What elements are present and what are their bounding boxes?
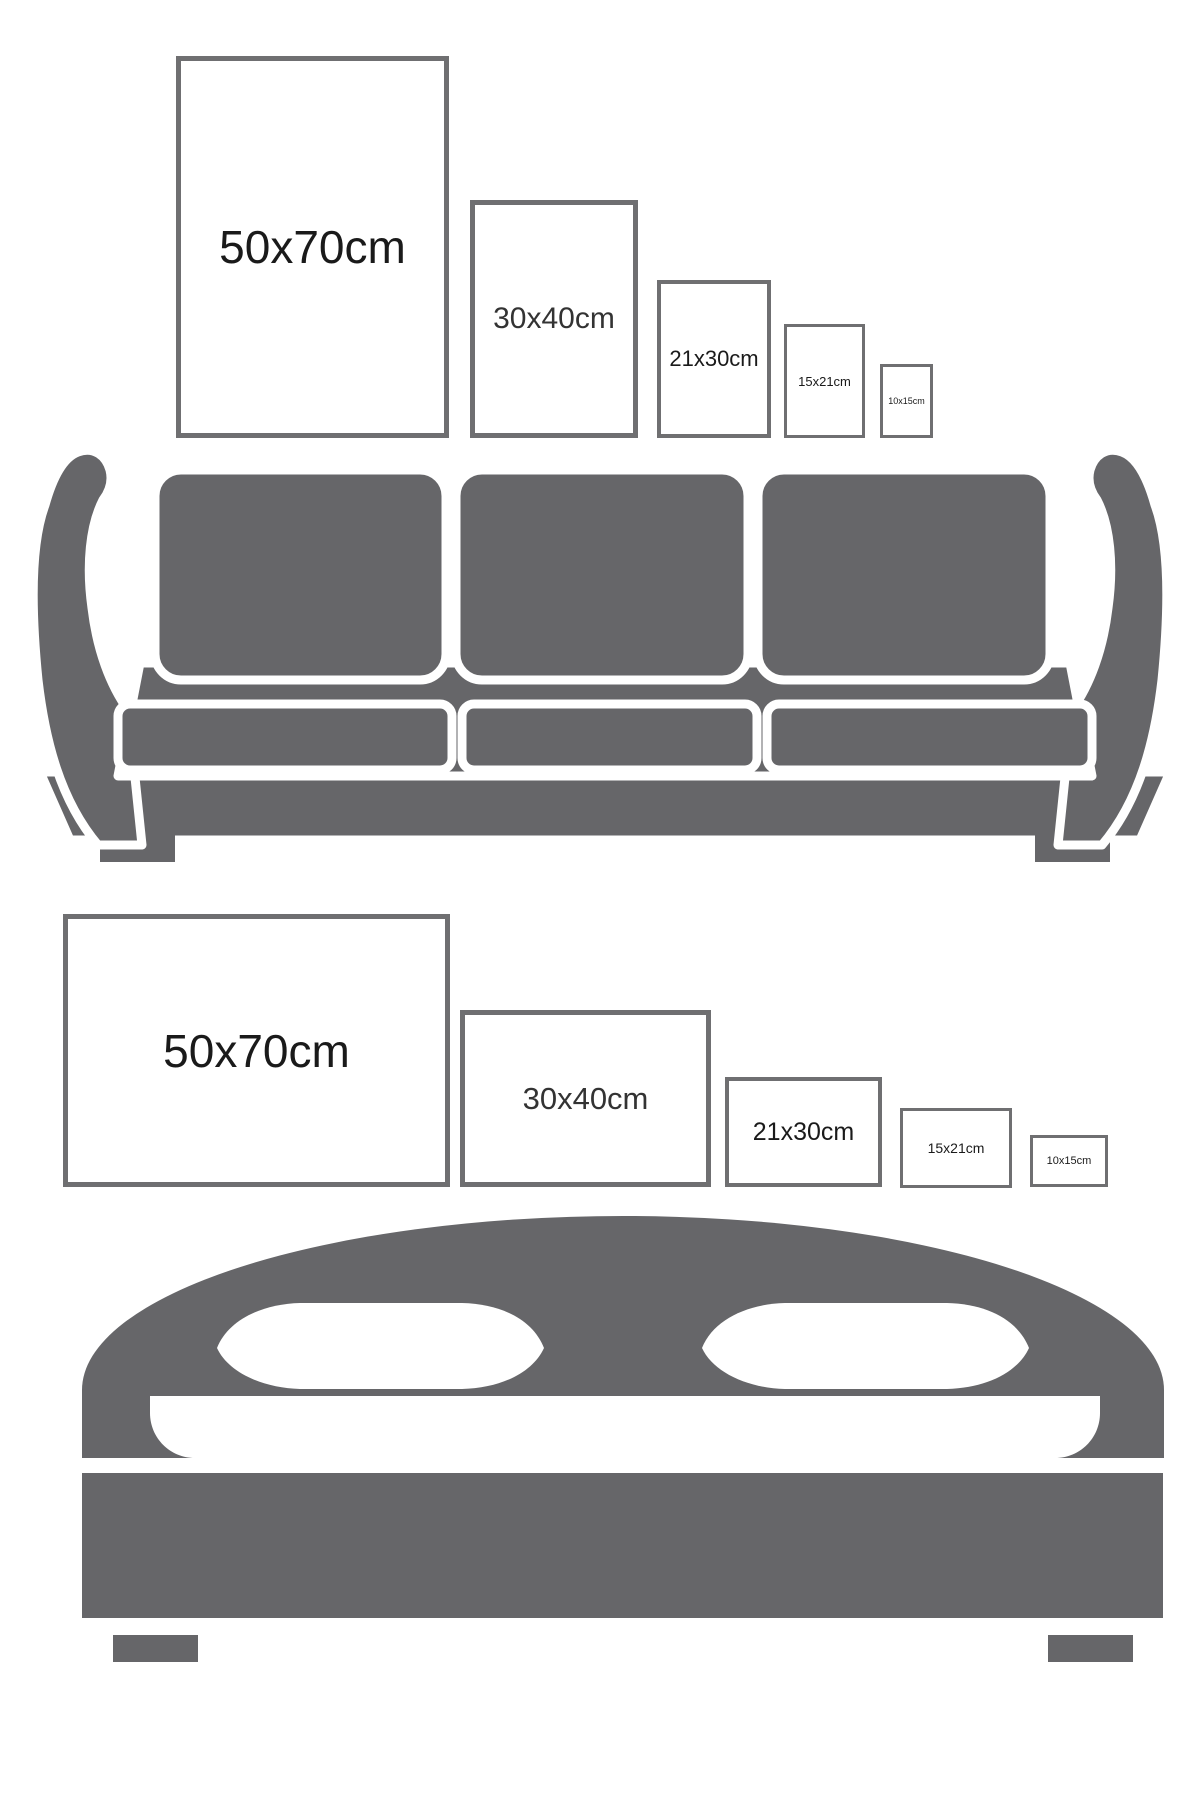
frame-portrait-30x40: 30x40cm [470, 200, 638, 438]
frame-landscape-15x21: 15x21cm [900, 1108, 1012, 1188]
frame-size-label: 30x40cm [493, 302, 615, 336]
frame-size-label: 21x30cm [669, 346, 758, 372]
frame-size-label: 10x15cm [1047, 1155, 1092, 1167]
frame-landscape-21x30: 21x30cm [725, 1077, 882, 1187]
frame-landscape-10x15: 10x15cm [1030, 1135, 1108, 1187]
frame-size-label: 15x21cm [928, 1140, 985, 1156]
frame-size-label: 15x21cm [798, 374, 851, 389]
frame-portrait-50x70: 50x70cm [176, 56, 449, 438]
frame-landscape-50x70: 50x70cm [63, 914, 450, 1187]
frame-size-label: 30x40cm [523, 1081, 649, 1117]
sofa-icon [0, 413, 1200, 875]
frame-landscape-30x40: 30x40cm [460, 1010, 711, 1187]
frame-size-label: 50x70cm [219, 220, 406, 274]
poster-size-guide: 50x70cm 30x40cm 21x30cm 15x21cm 10x15cm [0, 0, 1200, 1800]
frame-size-label: 21x30cm [753, 1118, 854, 1147]
bed-icon [0, 1200, 1200, 1670]
frame-size-label: 50x70cm [163, 1024, 350, 1078]
frame-size-label: 10x15cm [888, 396, 925, 406]
